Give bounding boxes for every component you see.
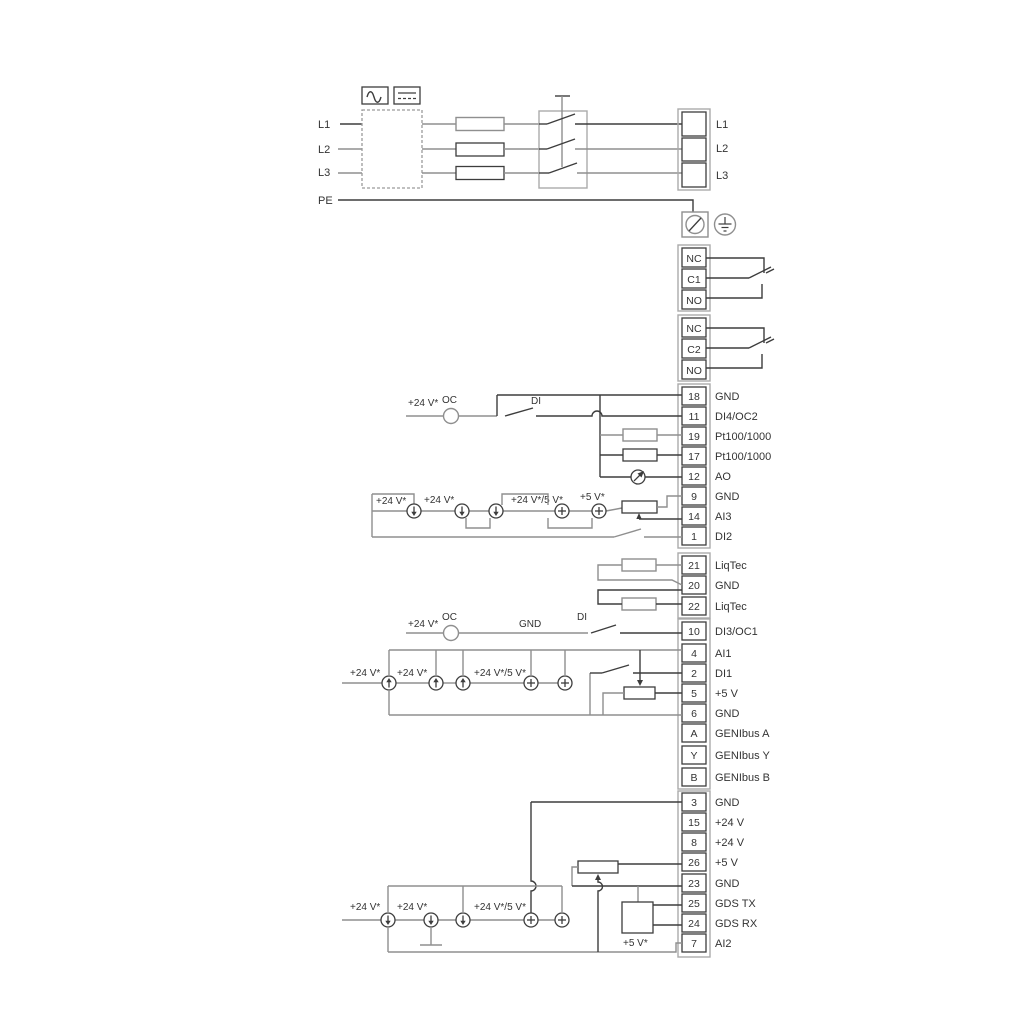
di-label-2: DI (577, 612, 587, 623)
t18-num: 18 (688, 391, 700, 403)
io1-circuit: +24 V* OC DI (406, 395, 682, 484)
t18-label: GND (715, 391, 740, 403)
current-source-icon (455, 504, 469, 518)
fuse-l3 (456, 167, 504, 180)
v24-label-3: +24 V* (424, 495, 454, 506)
t12-num: 12 (688, 471, 700, 483)
oc-label-1: OC (442, 395, 457, 406)
t8-label: +24 V (715, 837, 745, 849)
voltage-source-icon (524, 676, 538, 690)
pt100-resistor-2 (623, 449, 657, 461)
phase-l2-label: L2 (318, 144, 330, 156)
t14-label: AI3 (715, 511, 732, 523)
current-source-icon (456, 913, 470, 927)
terminal-strip-io3: 3 15 8 26 23 25 24 7 GND +24 V +24 V +5 … (678, 791, 758, 957)
relay2-c2: C2 (687, 344, 701, 356)
t8-num: 8 (691, 837, 697, 849)
t6-num: 6 (691, 708, 697, 720)
t10-label: DI3/OC1 (715, 626, 758, 638)
current-source-icon (424, 913, 438, 927)
tA-num: A (690, 728, 697, 740)
main-switch (539, 96, 587, 188)
t14-num: 14 (688, 511, 700, 523)
pt100-resistor-1 (623, 429, 657, 441)
current-source-icon (382, 676, 396, 690)
current-source-icon (407, 504, 421, 518)
t7-label: AI2 (715, 938, 732, 950)
t7-num: 7 (691, 938, 697, 950)
mains-input-section: L1 L2 L3 PE (318, 87, 736, 237)
t9-label: GND (715, 491, 740, 503)
t21-num: 21 (688, 560, 700, 572)
t3-num: 3 (691, 797, 697, 809)
t20-num: 20 (688, 580, 700, 592)
t1-label: DI2 (715, 531, 732, 543)
t5-num: 5 (691, 688, 697, 700)
relay2-contact (706, 328, 774, 368)
t22-num: 22 (688, 601, 700, 613)
block-l2-label: L2 (716, 143, 728, 155)
v24-label-4: +24 V* (408, 619, 438, 630)
terminal-strip-io1: 18 11 19 17 12 9 14 1 GND DI4/OC2 Pt100/… (678, 384, 771, 548)
potentiometer-ai1 (603, 687, 682, 715)
t5-label: +5 V (715, 688, 739, 700)
terminal-strip-liqtec: 21 20 22 LiqTec GND LiqTec (678, 553, 747, 618)
relay1-no: NO (686, 295, 702, 307)
t19-label: Pt100/1000 (715, 431, 771, 443)
screw-terminal-icon (682, 212, 708, 237)
t4-label: AI1 (715, 648, 732, 660)
t15-label: +24 V (715, 817, 745, 829)
ai3-di2-circuit: +24 V* +24 V* +24 V*/5 V* +5 V* (372, 492, 682, 537)
v24-label-8: +24 V* (397, 902, 427, 913)
t25-num: 25 (688, 898, 700, 910)
relay-1-block: NC C1 NO (678, 245, 774, 311)
ground-icon (715, 214, 736, 235)
relay1-nc: NC (686, 253, 702, 265)
mains-terminal-block: L1 L2 L3 (678, 109, 728, 190)
gnd-wire-label: GND (519, 619, 541, 630)
block-l3-label: L3 (716, 170, 728, 182)
phase-l1-label: L1 (318, 119, 330, 131)
tB-label: GENIbus B (715, 772, 770, 784)
analog-output-meter-icon (600, 470, 682, 484)
v24-label-2: +24 V* (376, 496, 406, 507)
t1-num: 1 (691, 531, 697, 543)
v24-label-7: +24 V* (350, 902, 380, 913)
fuse-l1 (456, 118, 504, 131)
relay-2-block: NC C2 NO (678, 315, 774, 381)
di-label-1: DI (531, 396, 541, 407)
v24-label-6: +24 V* (397, 668, 427, 679)
voltage-source-icon (592, 504, 606, 518)
tY-label: GENIbus Y (715, 750, 770, 762)
v24-5-label-1: +24 V*/5 V* (511, 495, 563, 506)
relay2-nc: NC (686, 323, 702, 335)
dc-symbol-icon (394, 87, 420, 104)
voltage-source-icon (555, 504, 569, 518)
block-l1-label: L1 (716, 119, 728, 131)
di3-circuit: +24 V* OC GND DI (406, 612, 682, 641)
relay1-c1: C1 (687, 274, 701, 286)
v24-label-5: +24 V* (350, 668, 380, 679)
wiring-diagram: L1 L2 L3 PE (0, 0, 1024, 1024)
relay2-no: NO (686, 365, 702, 377)
t17-num: 17 (688, 451, 700, 463)
t3-label: GND (715, 797, 740, 809)
emc-filter-box (362, 110, 422, 188)
pe-label: PE (318, 195, 333, 207)
t22-label: LiqTec (715, 601, 747, 613)
ai1-di1-circuit: +24 V* +24 V* +24 V*/5 V* (342, 650, 682, 715)
t23-num: 23 (688, 878, 700, 890)
t6-label: GND (715, 708, 740, 720)
t12-label: AO (715, 471, 731, 483)
t26-label: +5 V (715, 857, 739, 869)
tB-num: B (690, 772, 697, 784)
t11-num: 11 (689, 411, 700, 423)
t19-num: 19 (688, 431, 700, 443)
t2-num: 2 (691, 668, 697, 680)
current-source-icon (489, 504, 503, 518)
t25-label: GDS TX (715, 898, 756, 910)
current-source-icon (381, 913, 395, 927)
current-source-icon (456, 676, 470, 690)
liqtec-sensor-1 (622, 559, 656, 571)
phase-l3-label: L3 (318, 167, 330, 179)
t21-label: LiqTec (715, 560, 747, 572)
t23-label: GND (715, 878, 740, 890)
fuse-l2 (456, 143, 504, 156)
potentiometer-ai3 (622, 496, 682, 519)
t26-num: 26 (688, 857, 700, 869)
voltage-source-icon (555, 913, 569, 927)
liqtec-circuit (598, 559, 682, 610)
v5-label-2: +5 V* (623, 938, 648, 949)
t20-label: GND (715, 580, 740, 592)
t10-num: 10 (688, 626, 700, 638)
ac-symbol-icon (362, 87, 388, 104)
voltage-source-icon (524, 913, 538, 927)
v24-5-label-3: +24 V*/5 V* (474, 902, 526, 913)
t24-num: 24 (688, 918, 700, 930)
liqtec-sensor-2 (622, 598, 656, 610)
t11-label: DI4/OC2 (715, 411, 758, 423)
relay1-contact (706, 258, 774, 298)
t15-num: 15 (688, 817, 700, 829)
oc-label-2: OC (442, 612, 457, 623)
t2-label: DI1 (715, 668, 732, 680)
gds-sensor-box: +5 V* (622, 886, 682, 949)
v24-5-label-2: +24 V*/5 V* (474, 668, 526, 679)
open-collector-icon (444, 626, 459, 641)
voltage-source-icon (558, 676, 572, 690)
t24-label: GDS RX (715, 918, 758, 930)
tA-label: GENIbus A (715, 728, 770, 740)
open-collector-icon (444, 409, 459, 424)
v24-label-1: +24 V* (408, 398, 438, 409)
t9-num: 9 (691, 491, 697, 503)
ai2-gds-circuit: +24 V* +24 V* +24 V*/5 V* (342, 802, 682, 952)
current-source-icon (429, 676, 443, 690)
t4-num: 4 (691, 648, 697, 660)
v5-label-1: +5 V* (580, 492, 605, 503)
t17-label: Pt100/1000 (715, 451, 771, 463)
terminal-strip-io2: 10 4 2 5 6 A Y B DI3/OC1 AI1 DI1 +5 V GN… (678, 619, 770, 789)
tY-num: Y (690, 750, 697, 762)
